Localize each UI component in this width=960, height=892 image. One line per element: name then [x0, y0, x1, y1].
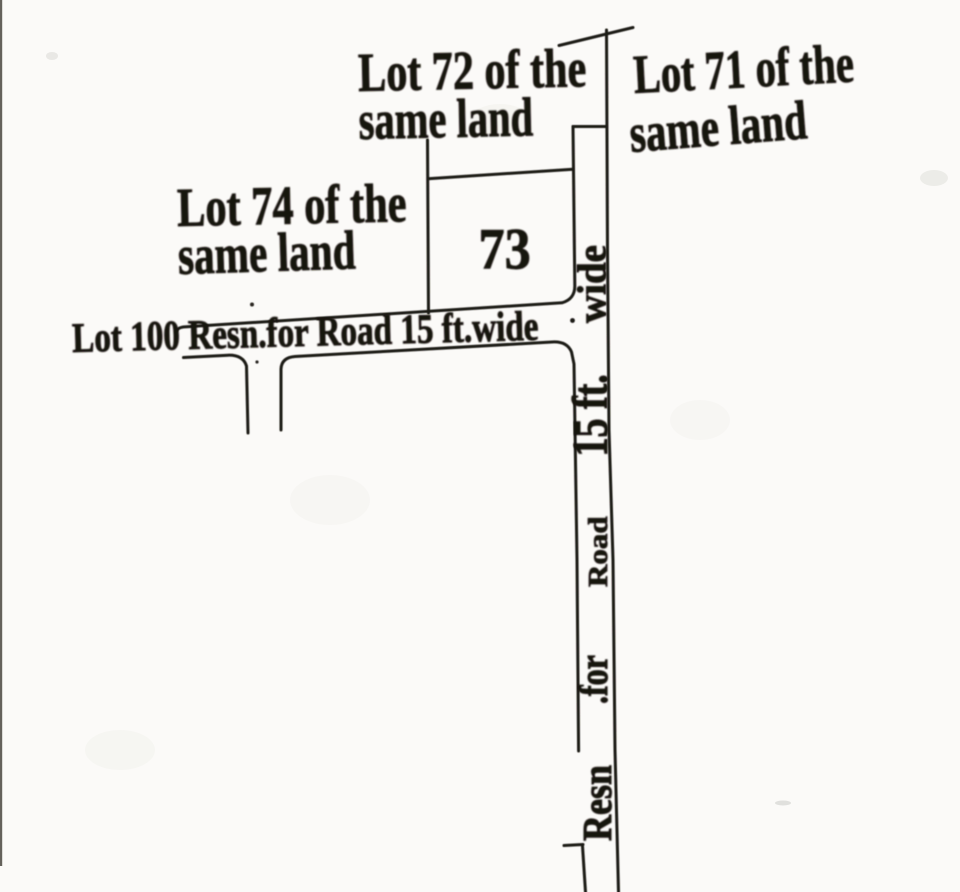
svg-text:wide: wide	[569, 245, 615, 323]
svg-text:same land: same land	[177, 220, 356, 287]
svg-text:.for: .for	[572, 655, 616, 704]
svg-text:same land: same land	[358, 88, 534, 152]
svg-text:73: 73	[479, 217, 531, 281]
svg-text:Road: Road	[584, 516, 614, 587]
svg-text:15 ft.: 15 ft.	[563, 374, 618, 456]
svg-text:Resn: Resn	[575, 765, 621, 841]
